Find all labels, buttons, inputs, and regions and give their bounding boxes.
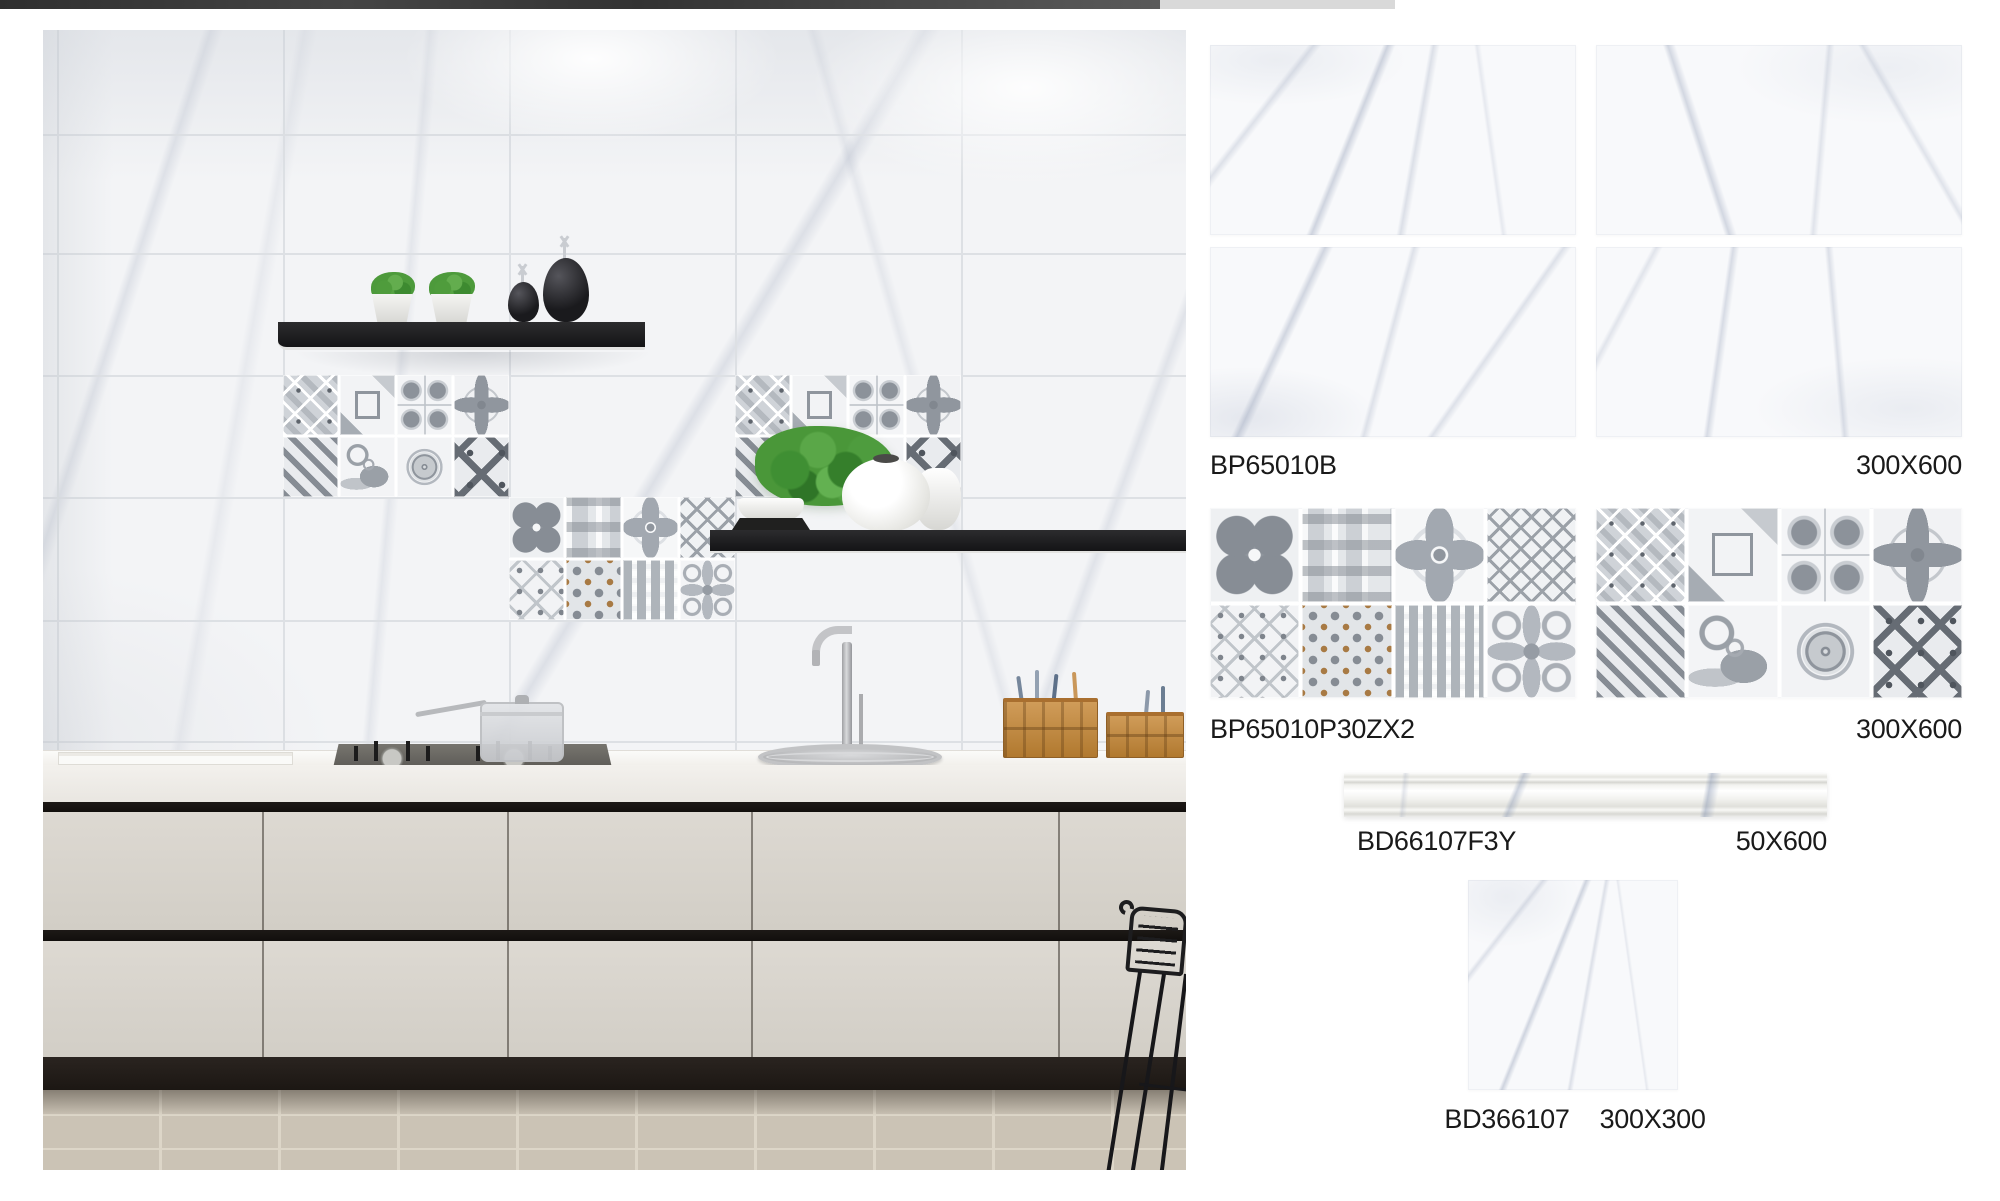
kitchen-scene-photo <box>43 30 1186 1170</box>
product-code: BP65010B <box>1210 450 1337 481</box>
pattern-cell-bevels <box>1596 508 1685 602</box>
toe-kick <box>43 1057 1186 1090</box>
ceiling-light-pools <box>43 30 1186 750</box>
shelf-shadow <box>293 352 653 378</box>
cabinet-seam <box>1058 941 1060 1057</box>
pattern-cell-weave <box>1395 605 1484 699</box>
pattern-cell-bevels <box>283 375 338 435</box>
cabinet-seam <box>507 941 509 1057</box>
marble-tile-sample <box>1210 247 1576 437</box>
pattern-cell-rosette <box>397 437 452 497</box>
floating-shelf-upper <box>278 322 645 350</box>
pattern-cell-lattice <box>1487 508 1576 602</box>
pattern-cell-clover <box>623 497 678 558</box>
product-size: 300X300 <box>1600 1104 1706 1135</box>
pattern-cell-starburst <box>1873 508 1962 602</box>
product-code: BD66107F3Y <box>1357 826 1516 857</box>
pattern-cell-medallions <box>397 375 452 435</box>
pattern-cell-chain <box>1210 605 1299 699</box>
pattern-cell-rosette <box>1781 605 1870 699</box>
black-vase-small <box>508 282 539 322</box>
pattern-cell-scroll <box>680 560 735 621</box>
bar-stool-back <box>1125 906 1186 977</box>
bowl-pedestal <box>732 518 810 530</box>
pattern-cell-paisley <box>1688 605 1777 699</box>
product-code: BD366107 <box>1444 1104 1569 1135</box>
marble-tile-sample <box>1596 247 1962 437</box>
white-vase-round <box>842 458 930 532</box>
floor-tiles <box>43 1090 1186 1170</box>
product-size: 50X600 <box>1736 826 1827 857</box>
pattern-cell-octagon <box>1873 605 1962 699</box>
pattern-cell-blocks <box>1302 508 1391 602</box>
pattern-cell-dots <box>1302 605 1391 699</box>
wall-patch-left <box>283 375 509 497</box>
pattern-cell-bevels <box>735 375 790 435</box>
drainboard <box>58 752 293 765</box>
pattern-cell-quatrefoil <box>509 497 564 558</box>
pattern-cell-octagon <box>454 437 509 497</box>
pattern-cell-clover <box>1395 508 1484 602</box>
cabinet-seam <box>507 812 509 930</box>
counter-front <box>43 765 1186 802</box>
pattern-cell-frame <box>340 375 395 435</box>
faucet-pipe <box>842 642 852 750</box>
marble-tile-sample <box>1210 45 1576 235</box>
pattern-cell-frame <box>1688 508 1777 602</box>
cabinet-seam <box>1058 812 1060 930</box>
vase-sprig <box>563 238 566 260</box>
product-code: BP65010P30ZX2 <box>1210 714 1415 745</box>
pattern-cell-starburst <box>906 375 961 435</box>
patchwork-tile-sample <box>1210 508 1576 698</box>
marble-square-sample <box>1468 880 1678 1090</box>
cabinet-seam <box>262 941 264 1057</box>
top-accent-bar-dark <box>0 0 1160 9</box>
faucet-lever <box>859 694 863 750</box>
pattern-cell-medallions <box>1781 508 1870 602</box>
cabinet-drawer-row <box>43 812 1186 930</box>
cabinet-seam <box>751 941 753 1057</box>
cabinet-gap <box>43 802 1186 812</box>
faucet-spout-tip <box>812 650 820 666</box>
marble-tile-sample <box>1596 45 1962 235</box>
pattern-cell-quatrefoil <box>1210 508 1299 602</box>
cabinet-seam <box>262 812 264 930</box>
wall-patch-middle <box>509 497 735 620</box>
cabinet-gap <box>43 930 1186 941</box>
wooden-caddy-right <box>1106 712 1184 758</box>
pattern-cell-scroll <box>1487 605 1576 699</box>
pattern-cell-starburst <box>454 375 509 435</box>
pattern-cell-stripes <box>283 437 338 497</box>
patchwork-tile-sample <box>1596 508 1962 698</box>
catalog-page: BP65010B 300X600 BP65010P30ZX2 300X600 B… <box>0 0 2000 1201</box>
pattern-cell-chain <box>509 560 564 621</box>
product-size: 300X600 <box>1856 450 1962 481</box>
pattern-cell-paisley <box>340 437 395 497</box>
pattern-cell-blocks <box>566 497 621 558</box>
border-trim-sample <box>1344 773 1827 817</box>
pattern-cell-medallions <box>849 375 904 435</box>
top-accent-bar-light <box>1160 0 1395 9</box>
floating-shelf-lower <box>710 530 1186 553</box>
white-bowl <box>738 498 804 520</box>
pattern-cell-stripes <box>1596 605 1685 699</box>
cabinet-seam <box>751 812 753 930</box>
pattern-cell-weave <box>623 560 678 621</box>
marble-wall <box>43 30 1186 750</box>
pattern-cell-dots <box>566 560 621 621</box>
wooden-caddy-left <box>1003 698 1098 758</box>
cabinet-drawer-row <box>43 941 1186 1057</box>
product-size: 300X600 <box>1856 714 1962 745</box>
glass-pot <box>480 702 564 762</box>
